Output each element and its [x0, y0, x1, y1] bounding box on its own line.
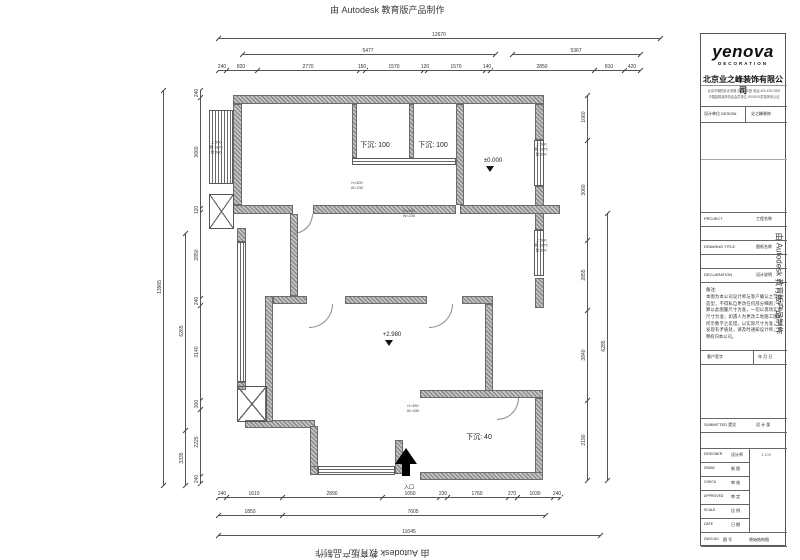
dimension-label: 2770	[301, 64, 314, 70]
dimension-line	[218, 535, 600, 536]
elevation-mark-icon	[486, 166, 494, 172]
dimension-tick	[183, 482, 189, 488]
dimension-label: 2850	[535, 64, 548, 70]
dimension-line	[607, 213, 608, 480]
dimension-tick	[493, 51, 499, 57]
plan-annotation: 台:500	[535, 153, 546, 158]
submitted-value: 设 计 部	[756, 422, 770, 428]
dwgno-value: 原始结构图	[749, 537, 769, 543]
wall	[456, 104, 464, 205]
dimension-label: 3140	[194, 345, 200, 358]
dimension-line	[218, 515, 545, 516]
door-arc	[429, 304, 453, 328]
dwgno-label-en: DWG.NO	[704, 537, 719, 541]
wall	[233, 205, 293, 214]
wall	[420, 472, 543, 480]
plan-annotation: 台:500	[535, 249, 546, 254]
dimension-label: 11045	[401, 529, 417, 535]
dimension-label: 3335	[179, 451, 185, 464]
drawing-title-label-cn: 图纸名称	[756, 244, 772, 250]
dimension-label: 240	[217, 491, 227, 497]
wall	[273, 296, 307, 304]
declaration-label-cn: 设计说明	[756, 272, 772, 278]
dimension-label: 1030	[528, 491, 541, 497]
dimension-line	[587, 95, 588, 480]
wall	[313, 205, 456, 214]
dimension-label: 1760	[470, 491, 483, 497]
dimension-line	[200, 90, 201, 483]
autodesk-banner-bottom: 由 Autodesk 教育版产品制作	[315, 547, 430, 560]
plan-annotation: H=350	[407, 404, 418, 408]
plan-annotation: 台:500	[210, 151, 221, 156]
wall	[462, 296, 493, 304]
dimension-label: 2855	[581, 268, 587, 281]
dimension-label: 6265	[179, 324, 185, 337]
dimension-label: 1850	[243, 509, 256, 515]
table-date-en: DATE	[704, 522, 713, 526]
wall	[535, 398, 543, 474]
dimension-label: 1570	[387, 64, 400, 70]
dimension-line	[218, 70, 640, 71]
wall	[420, 390, 543, 398]
wall	[233, 104, 242, 205]
dimension-label: 5367	[569, 48, 582, 54]
table-designer-cn: 设计师	[731, 452, 743, 458]
table-approved-en: APPROVED	[704, 494, 723, 498]
dimension-tick	[605, 477, 611, 483]
dimension-label: 1060	[581, 110, 587, 123]
dimension-line	[163, 90, 164, 485]
dimension-tick	[598, 532, 604, 538]
company-line2: 中国建筑装饰协会会员单位 ISO9001质量体系认证	[703, 94, 785, 99]
dimension-label: 820	[236, 64, 246, 70]
table-check-cn: 审 核	[731, 480, 740, 486]
plan-annotation: ±0.000	[484, 158, 502, 164]
sign-date-label: 年 月 日	[758, 354, 772, 360]
plan-annotation: 下沉: 100	[360, 140, 390, 150]
dimension-line	[512, 54, 640, 55]
title-block: yenova DECORATION 北京业之峰装饰有限公司 北京市朝阳区北苑路 …	[700, 33, 786, 546]
plan-annotation: 入口	[404, 484, 414, 491]
window	[352, 158, 456, 165]
scale-value: 1:100	[761, 452, 771, 457]
dimension-label: 2190	[581, 433, 587, 446]
autodesk-banner-top: 由 Autodesk 教育版产品制作	[330, 3, 445, 16]
table-draw-cn: 制 图	[731, 466, 740, 472]
dimension-label: 12670	[431, 32, 447, 38]
dimension-label: 120	[194, 205, 200, 215]
wall	[352, 104, 357, 158]
dimension-label: 1650	[403, 491, 416, 497]
design-dept-label: 设计单位 DESIGN	[704, 111, 736, 117]
dimension-label: 140	[482, 64, 492, 70]
dimension-tick	[543, 512, 549, 518]
dimension-tick	[585, 477, 591, 483]
company-line1: 北京市朝阳区北苑路 凯旋城E座 电话:400-678-9009	[703, 88, 785, 93]
dimension-tick	[161, 482, 167, 488]
wall	[345, 296, 427, 304]
yenova-logo-sub: DECORATION	[701, 61, 785, 66]
plan-annotation: W=230	[403, 214, 415, 218]
project-label-en: PROJECT	[704, 216, 723, 221]
table-draw-en: DRAW	[704, 466, 715, 470]
dimension-label: 1570	[449, 64, 462, 70]
plan-annotation: H=300	[403, 209, 414, 213]
cad-sheet: 由 Autodesk 教育版产品制作 由 Autodesk 教育版产品制作 由 …	[0, 0, 800, 560]
dimension-label: 2225	[194, 435, 200, 448]
column	[209, 194, 234, 229]
plan-annotation: +2.980	[383, 332, 402, 338]
entrance-arrow-icon	[395, 448, 417, 464]
door-arc	[309, 304, 333, 328]
wall	[485, 304, 493, 392]
declaration-label-en: DECLARATION	[704, 272, 732, 277]
plan-annotation: 下沉: 100	[418, 140, 448, 150]
dimension-label: 13965	[157, 279, 163, 295]
dwgno-label-cn: 图 号	[723, 537, 732, 543]
dimension-line	[242, 54, 495, 55]
wall	[409, 104, 414, 158]
dimension-label: 420	[627, 64, 637, 70]
plan-annotation: H=300	[351, 181, 362, 185]
yenova-logo: yenova	[701, 42, 785, 62]
dimension-label: 6285	[601, 339, 607, 352]
wall	[237, 228, 246, 242]
drawing-title-label-en: DRAWING TITLE	[704, 244, 735, 249]
entrance-arrow-stem	[402, 463, 410, 476]
plan-annotation: 下沉: 40	[466, 432, 492, 442]
dimension-label: 5477	[361, 48, 374, 54]
dimension-label: 240	[217, 64, 227, 70]
table-scale-en: SCALE	[704, 508, 715, 512]
dimension-line	[185, 233, 186, 485]
notes-text: 本图为本公司设计师与客户确认之节面造型，不得私自更改任何部分细则；结算以此图量尺…	[706, 294, 782, 341]
dimension-label: 240	[194, 474, 200, 484]
dimension-label: 240	[194, 296, 200, 306]
dimension-label: 2890	[325, 491, 338, 497]
plan-annotation: W=430	[407, 409, 419, 413]
window	[318, 466, 395, 475]
dimension-line	[218, 38, 660, 39]
table-scale-cn: 比 例	[731, 508, 740, 514]
wall	[310, 426, 318, 468]
client-sign-label: 客户签字	[707, 354, 723, 360]
wall	[233, 95, 544, 104]
design-dept-value: 业之峰装饰	[751, 111, 771, 117]
dimension-label: 1610	[247, 491, 260, 497]
dimension-label: 3660	[194, 145, 200, 158]
wall	[460, 205, 560, 214]
table-designer-en: DESIGNER	[704, 452, 722, 456]
dimension-label: 270	[507, 491, 517, 497]
dimension-label: 810	[604, 64, 614, 70]
wall	[535, 278, 544, 308]
dimension-label: 230	[438, 491, 448, 497]
wall	[535, 104, 544, 140]
table-approved-cn: 审 定	[731, 494, 740, 500]
dimension-label: 150	[357, 64, 367, 70]
submitted-label: SUBMITTED 提交	[704, 422, 736, 428]
dimension-tick	[638, 51, 644, 57]
dimension-tick	[638, 67, 644, 73]
plan-annotation: W=230	[351, 186, 363, 190]
wall	[310, 466, 318, 475]
table-check-en: CHECK	[704, 480, 716, 484]
dimension-tick	[658, 35, 664, 41]
dimension-label: 7605	[406, 509, 419, 515]
notes-head: 备注:	[706, 287, 716, 293]
dimension-label: 240	[552, 491, 562, 497]
door-arc	[293, 214, 313, 234]
door-arc	[497, 398, 519, 420]
column	[237, 386, 267, 422]
dimension-label: 3840	[581, 348, 587, 361]
window	[237, 242, 246, 382]
dimension-label: 3060	[581, 183, 587, 196]
dimension-label: 240	[194, 88, 200, 98]
dimension-label: 120	[420, 64, 430, 70]
project-label-cn: 工程名称	[756, 216, 772, 222]
dimension-label: 300	[194, 399, 200, 409]
table-date-cn: 日 期	[731, 522, 740, 528]
elevation-mark-icon	[385, 340, 393, 346]
dimension-label: 2850	[194, 248, 200, 261]
